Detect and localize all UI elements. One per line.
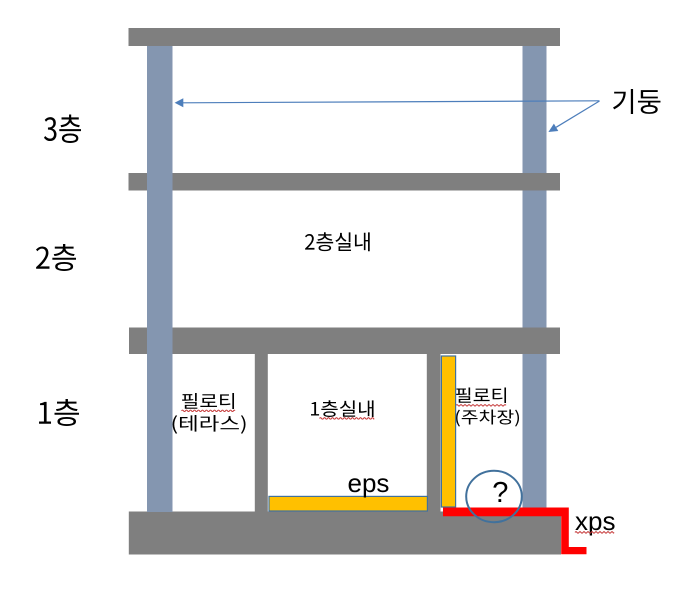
svg-text:?: ? <box>492 477 508 509</box>
svg-text:eps: eps <box>348 468 390 498</box>
